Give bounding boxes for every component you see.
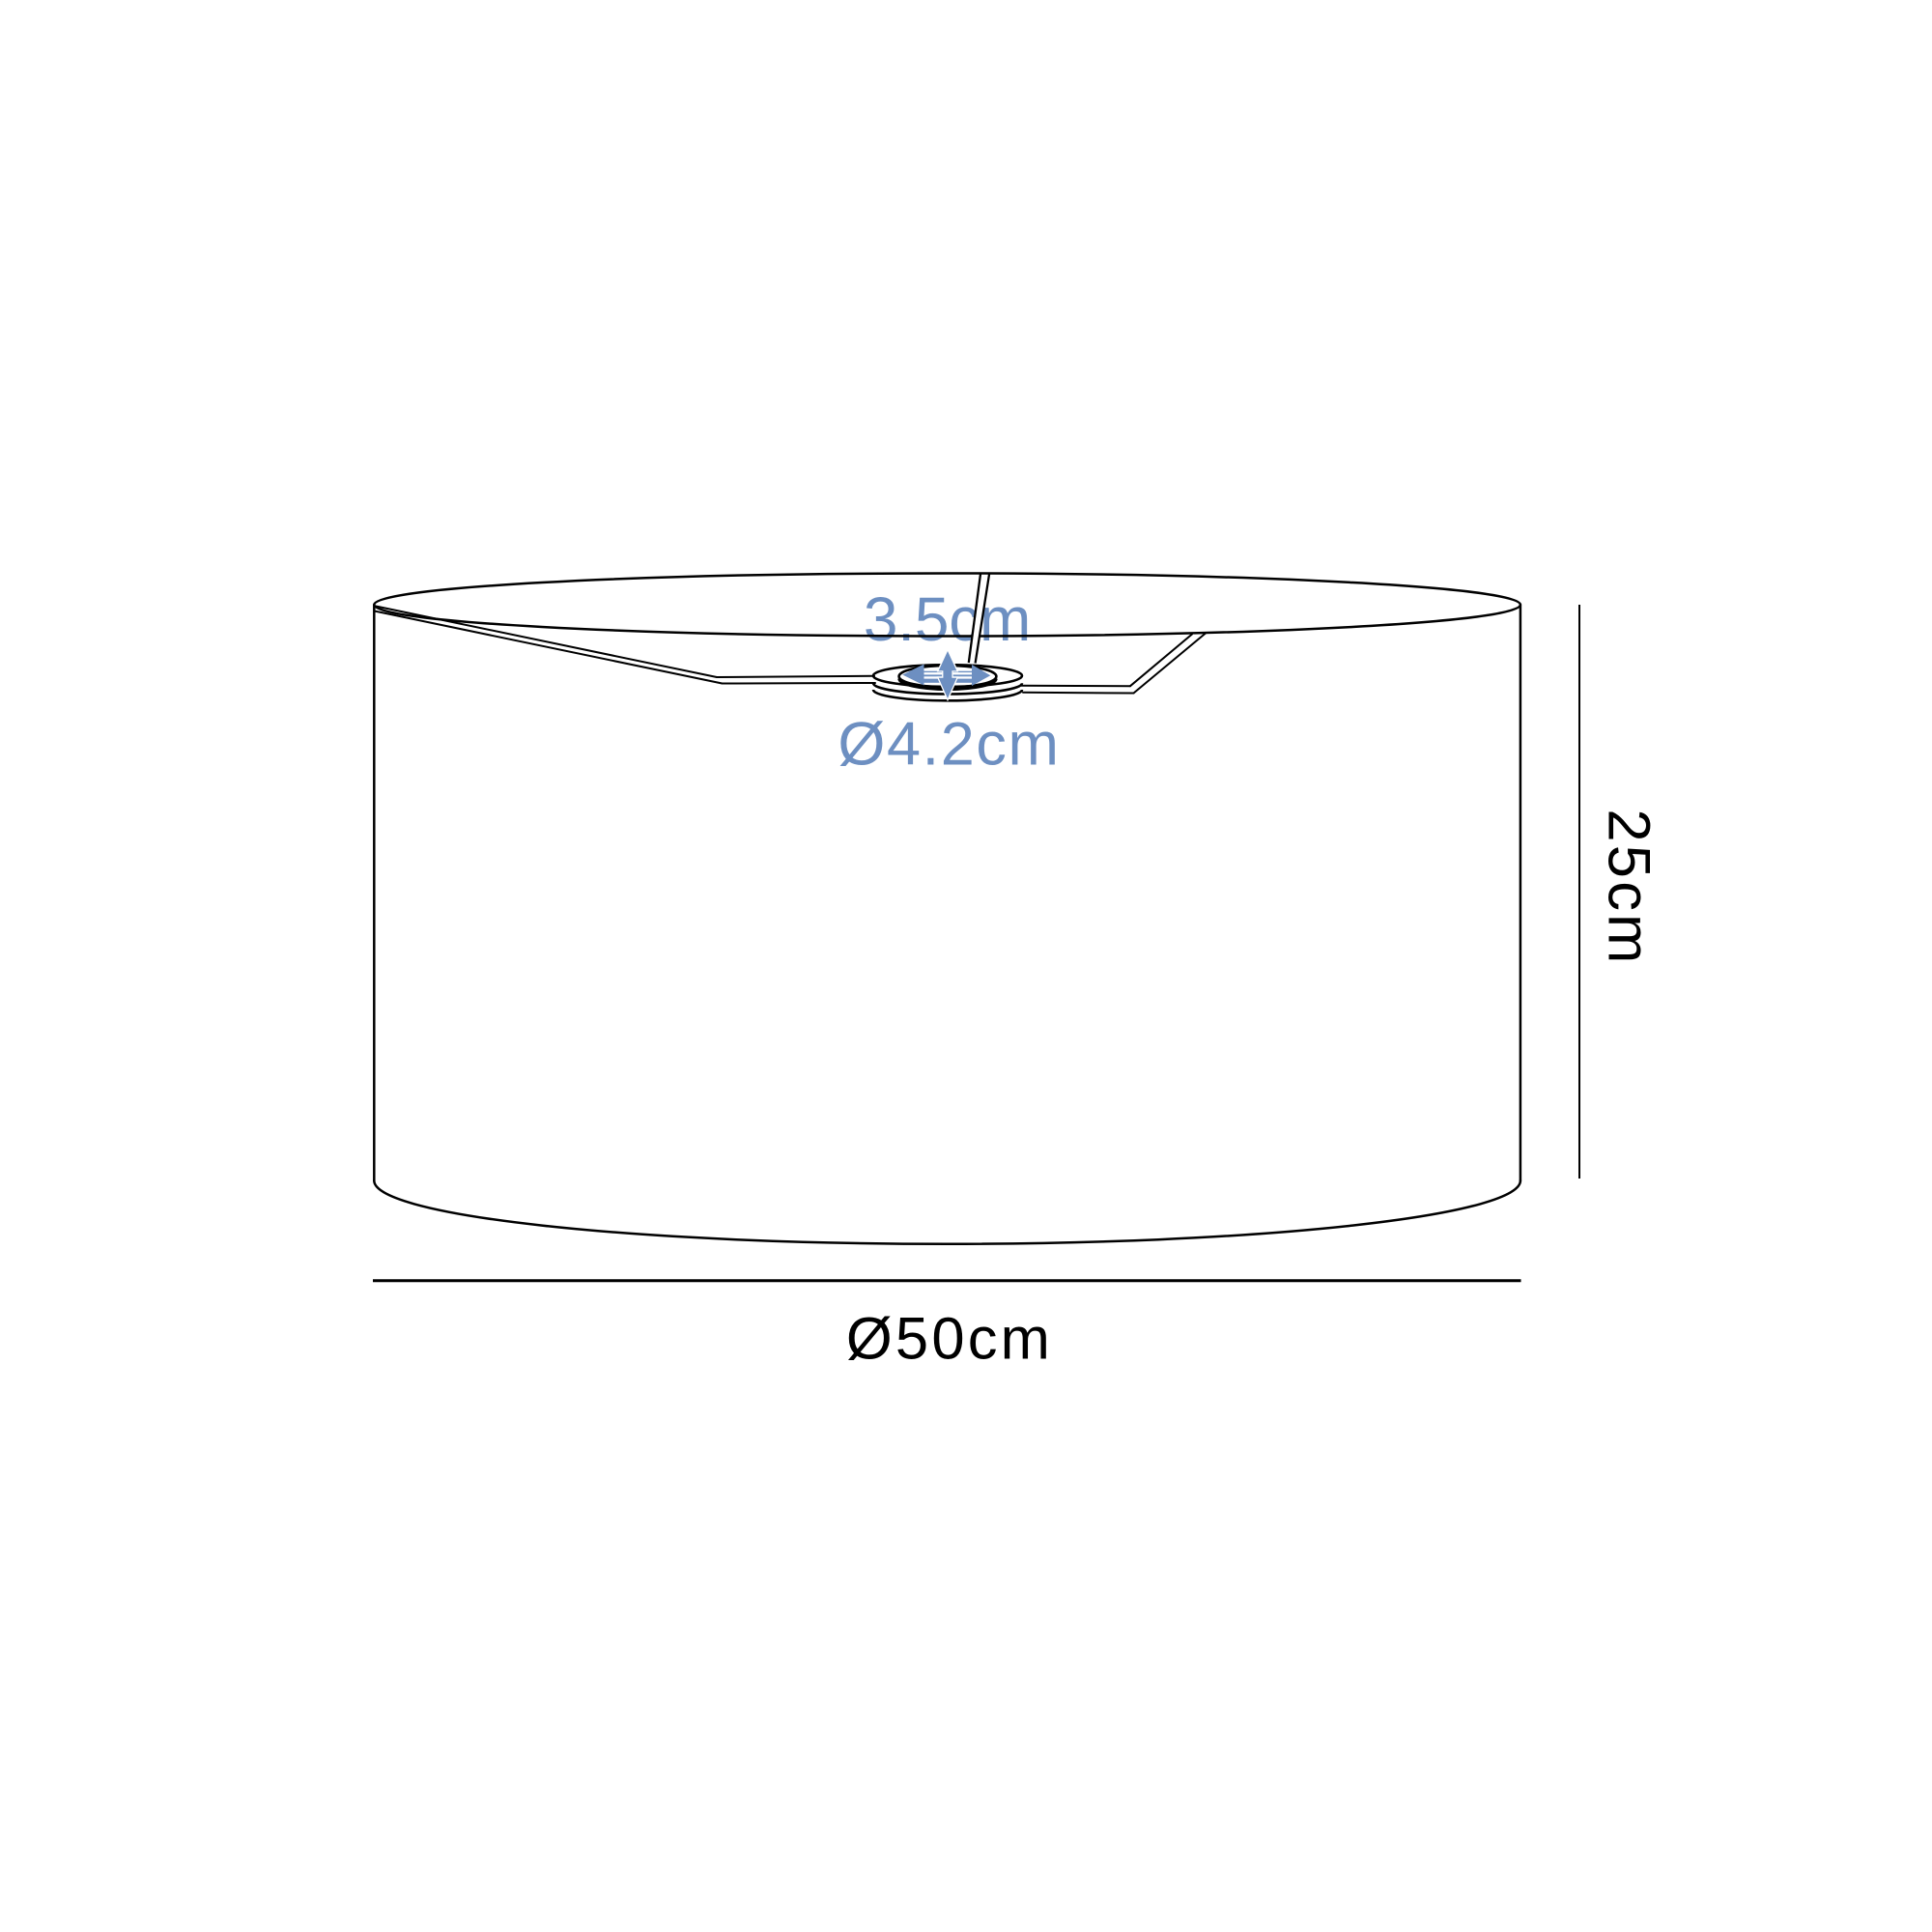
svg-text:Ø50cm: Ø50cm: [846, 1306, 1053, 1373]
svg-text:3.5cm: 3.5cm: [864, 584, 1031, 654]
svg-text:Ø4.2cm: Ø4.2cm: [838, 711, 1060, 779]
svg-text:25cm: 25cm: [1595, 809, 1662, 966]
